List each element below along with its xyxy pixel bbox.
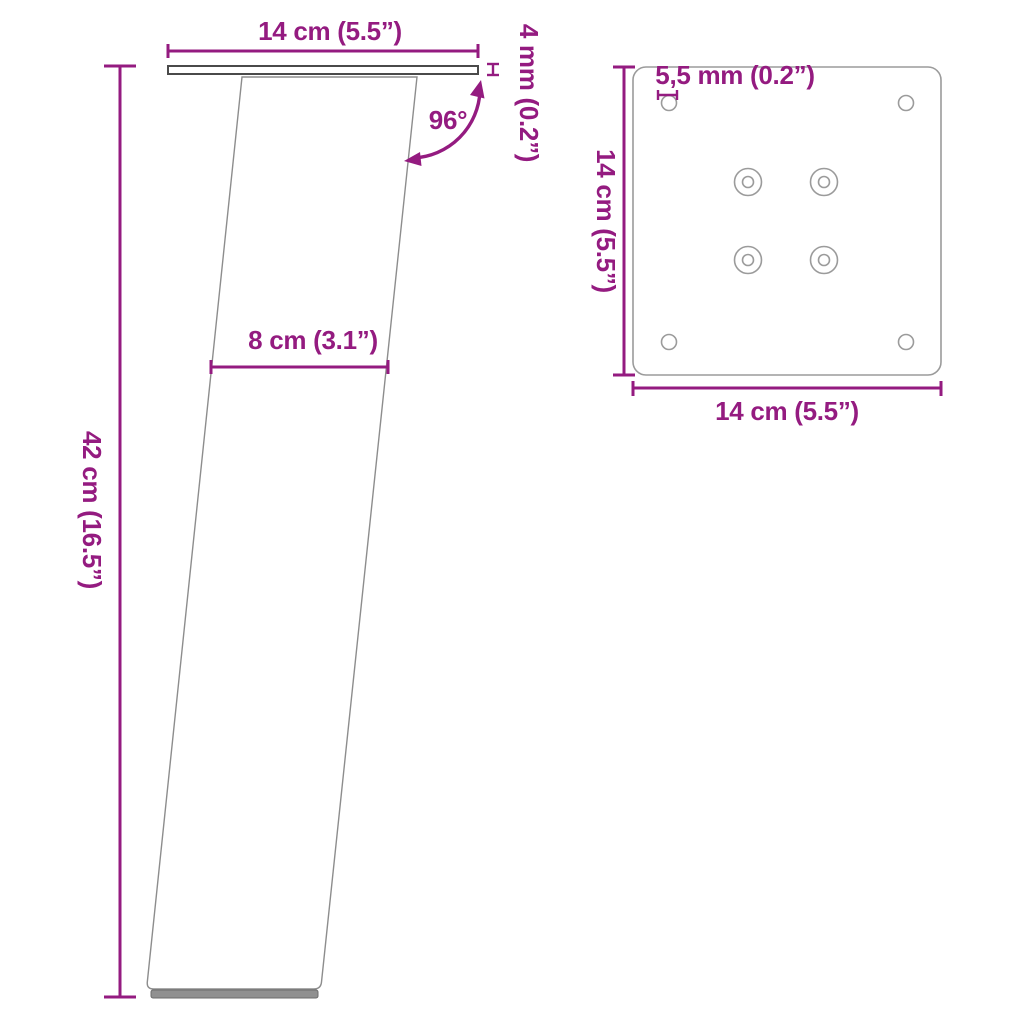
side-view xyxy=(147,66,478,998)
plate-side-label: 14 cm (5.5”) xyxy=(593,149,619,293)
screw-hole xyxy=(735,247,762,274)
plate-thickness-label: 4 mm (0.2”) xyxy=(516,24,542,162)
angle-arrow-up-icon xyxy=(470,80,485,99)
screw-hole xyxy=(811,169,838,196)
technical-drawing xyxy=(0,0,1024,1024)
foot-pad xyxy=(151,990,318,998)
screw-hole xyxy=(735,169,762,196)
thickness-marker xyxy=(487,64,499,75)
diagram-canvas: 14 cm (5.5”) 4 mm (0.2”) 96° 8 cm (3.1”)… xyxy=(0,0,1024,1024)
corner-hole xyxy=(662,335,677,350)
angle-label: 96° xyxy=(429,107,467,133)
corner-hole xyxy=(899,335,914,350)
leg-width-label: 8 cm (3.1”) xyxy=(248,327,378,353)
mounting-plate-top xyxy=(633,67,941,375)
top-width-label: 14 cm (5.5”) xyxy=(258,18,402,44)
top-view xyxy=(633,67,941,375)
leg-height-label: 42 cm (16.5”) xyxy=(79,431,105,589)
corner-hole xyxy=(662,96,677,111)
mounting-plate-side xyxy=(168,66,478,74)
hole-diameter-label: 5,5 mm (0.2”) xyxy=(655,62,814,88)
leg-outline xyxy=(147,77,417,989)
plate-bottom-label: 14 cm (5.5”) xyxy=(715,398,859,424)
corner-hole xyxy=(899,96,914,111)
screw-hole xyxy=(811,247,838,274)
